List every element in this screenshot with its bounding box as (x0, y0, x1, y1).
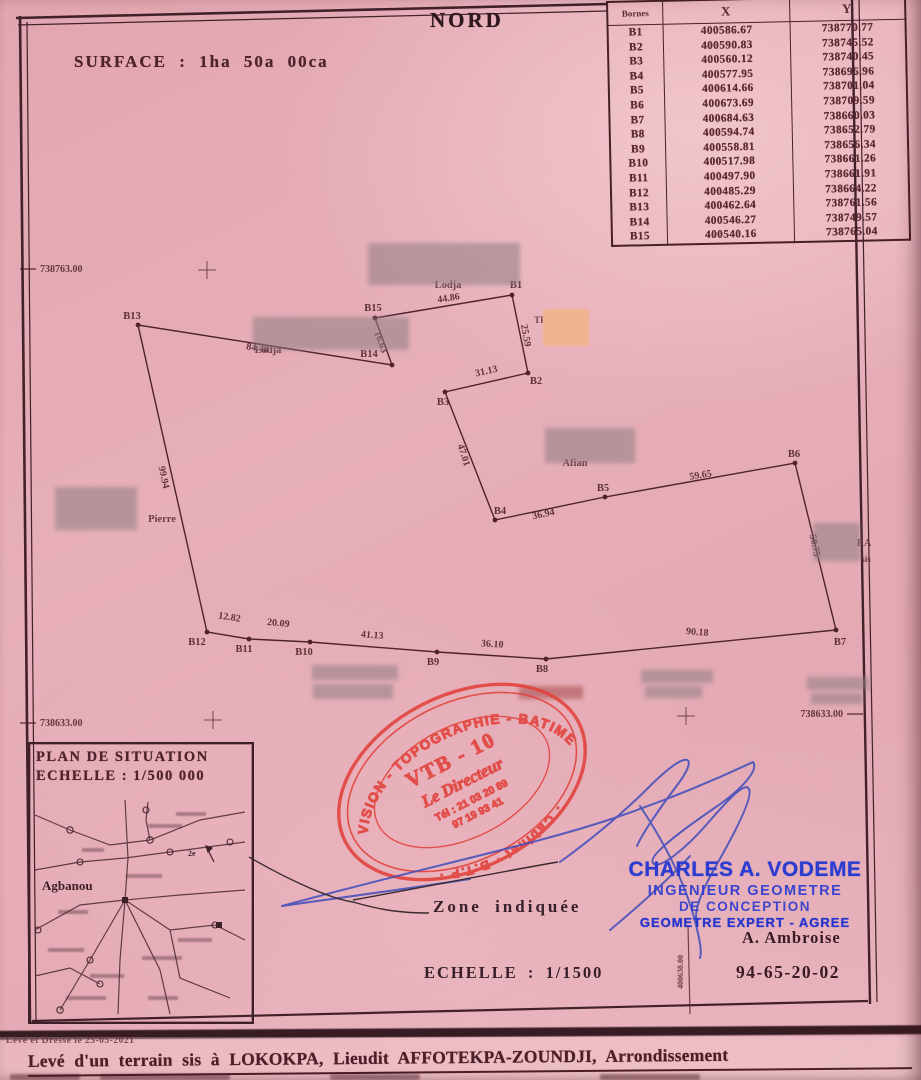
surveyor-stamp-block: CHARLES A. VODEME INGENIEUR GEOMETRE DE … (578, 858, 912, 930)
cutoff-text-fragment (100, 1074, 230, 1080)
plan-scale-label: ECHELLE : 1/1500 (424, 963, 603, 983)
cutoff-text-fragment (10, 1074, 80, 1080)
surveyor-name: CHARLES A. VODEME (578, 858, 912, 882)
surveyor-title1: INGENIEUR GEOMETRE (578, 883, 912, 899)
contact-name: A. Ambroise (742, 928, 841, 948)
survey-date-line: Levé et Dressé le 25-05-2021 (6, 1036, 134, 1046)
cutoff-text-fragment (330, 1074, 420, 1080)
scanned-survey-plan: B1B2B3B4B5B6B7B8B9B10B11B12B13B14B1544.8… (0, 0, 921, 1080)
zone-indiquee-label: Zone indiquée (433, 897, 581, 917)
cutoff-text-fragment (600, 1074, 700, 1080)
surveyor-title2: DE CONCEPTION (578, 899, 912, 914)
contact-phone: 94-65-20-02 (736, 962, 840, 983)
